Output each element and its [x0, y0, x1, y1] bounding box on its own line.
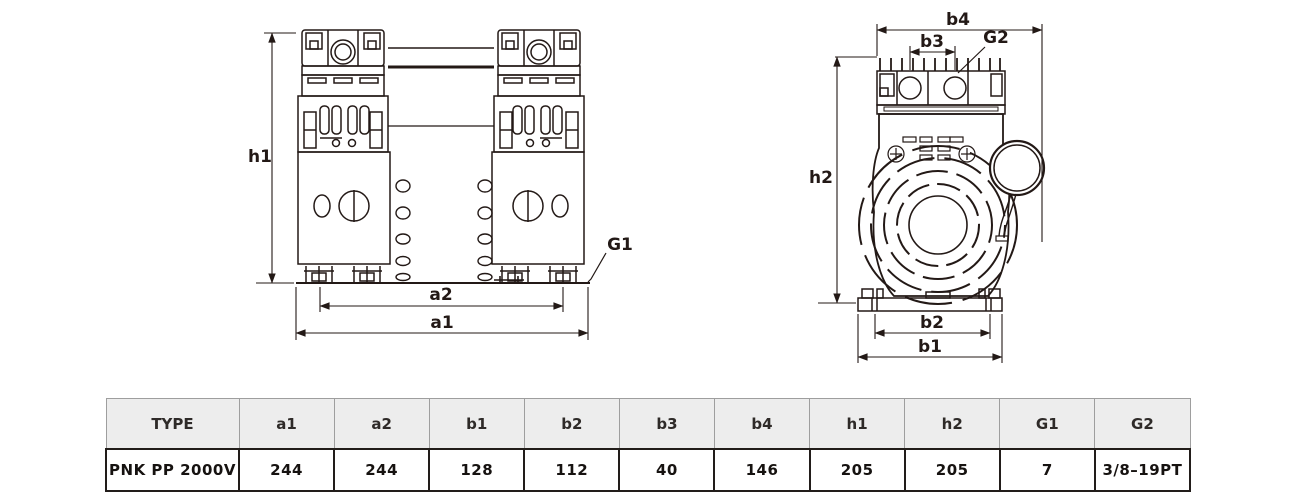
technical-drawing-page: h1 a2 a1 G1 b4 b3 G2 h2 b2 b1 TYPE a1 a2 [0, 0, 1300, 500]
dim-label-h2: h2 [809, 168, 833, 188]
vent-holes [396, 180, 492, 281]
col-header-b1: b1 [429, 399, 524, 450]
g2-leader [958, 47, 985, 73]
cell-b4: 146 [714, 449, 809, 491]
col-header-h1: h1 [810, 399, 905, 450]
col-header-b3: b3 [619, 399, 714, 450]
dim-label-g2: G2 [983, 28, 1009, 48]
dim-b4 [877, 24, 1042, 242]
dim-label-h1: h1 [248, 147, 272, 167]
col-header-h2: h2 [905, 399, 1000, 450]
port-hole-right [944, 77, 966, 99]
table-row: PNK PP 2000V 244 244 128 112 40 146 205 … [106, 449, 1190, 491]
dim-label-b3: b3 [920, 32, 944, 52]
dim-label-b1: b1 [918, 337, 942, 357]
dim-label-a2: a2 [429, 285, 452, 305]
compressor-dimension-drawing: h1 a2 a1 G1 b4 b3 G2 h2 b2 b1 [0, 0, 1300, 395]
cell-g2: 3/8–19PT [1095, 449, 1190, 491]
cell-b2: 112 [524, 449, 619, 491]
col-header-a1: a1 [239, 399, 334, 450]
col-header-g1: G1 [1000, 399, 1095, 450]
dim-label-b2: b2 [920, 313, 944, 333]
col-header-a2: a2 [334, 399, 429, 450]
col-header-b2: b2 [524, 399, 619, 450]
dim-label-a1: a1 [430, 313, 453, 333]
g1-leader [588, 253, 606, 282]
cell-a2: 244 [334, 449, 429, 491]
left-cylinder-head [298, 30, 390, 283]
dimension-labels: h1 a2 a1 G1 b4 b3 G2 h2 b2 b1 [248, 10, 1009, 357]
col-header-b4: b4 [714, 399, 809, 450]
spec-table: TYPE a1 a2 b1 b2 b3 b4 h1 h2 G1 G2 PNK P… [105, 398, 1191, 492]
connecting-tube [388, 48, 494, 126]
cell-a1: 244 [239, 449, 334, 491]
dim-label-g1: G1 [607, 235, 633, 255]
cell-b3: 40 [619, 449, 714, 491]
cell-h2: 205 [905, 449, 1000, 491]
cooling-fins [880, 58, 1000, 71]
right-cylinder-head [492, 30, 584, 283]
col-header-g2: G2 [1095, 399, 1190, 450]
port-hole-left [899, 77, 921, 99]
head-plate [877, 71, 1005, 114]
cell-g1: 7 [1000, 449, 1095, 491]
cell-b1: 128 [429, 449, 524, 491]
table-header-row: TYPE a1 a2 b1 b2 b3 b4 h1 h2 G1 G2 [106, 399, 1190, 450]
dim-label-b4: b4 [946, 10, 970, 30]
cell-h1: 205 [810, 449, 905, 491]
col-header-type: TYPE [106, 399, 239, 450]
cell-type: PNK PP 2000V [106, 449, 239, 491]
